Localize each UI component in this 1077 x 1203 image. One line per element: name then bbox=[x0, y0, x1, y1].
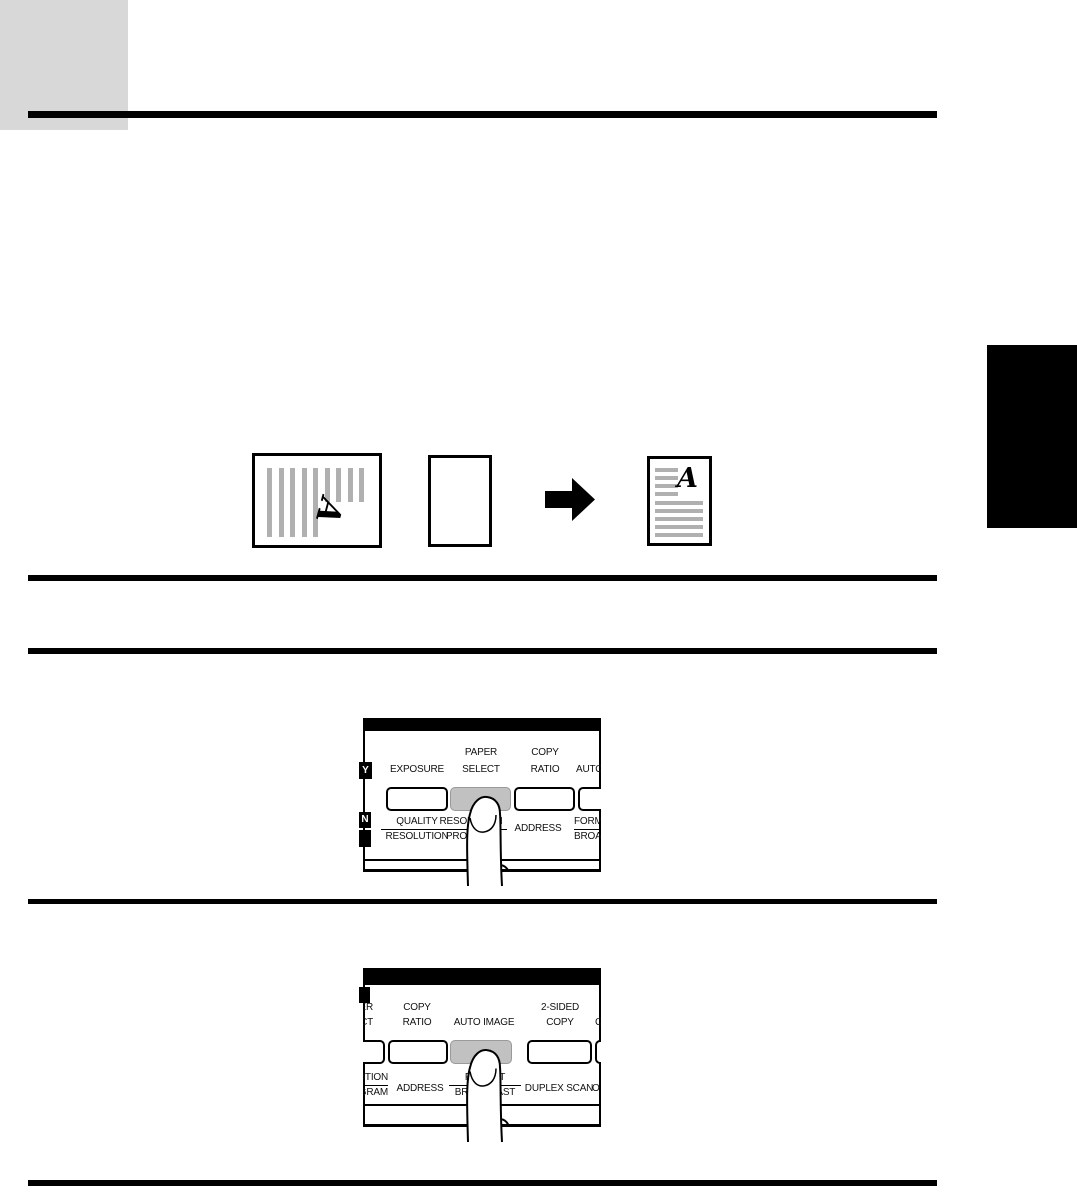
key-label-fragment-c: C bbox=[595, 1016, 601, 1029]
copy-ratio-key bbox=[514, 787, 575, 811]
manual-page: A A EXPOSURE PAPER SELECT COPY RATIO AUT… bbox=[0, 0, 1077, 1203]
text-stripe bbox=[267, 468, 272, 537]
key-label-address: ADDRESS bbox=[397, 1082, 444, 1095]
label-line2: RATIO bbox=[403, 1016, 432, 1029]
text-line bbox=[655, 484, 678, 488]
mode-tab-fragment-n: N bbox=[359, 812, 371, 828]
text-line bbox=[655, 517, 703, 521]
mode-tab-fragment-blank bbox=[359, 830, 371, 847]
text-line bbox=[655, 525, 703, 529]
section-rule-2 bbox=[28, 648, 937, 654]
text-line bbox=[655, 476, 678, 480]
bottom-rule bbox=[28, 1180, 937, 1186]
text-stripe bbox=[359, 468, 364, 502]
pointing-finger-icon bbox=[459, 1045, 505, 1142]
step-divider-rule bbox=[28, 899, 937, 904]
mode-tab-fragment-blank bbox=[359, 987, 370, 1003]
key-label-fragment-o: O bbox=[592, 1082, 600, 1095]
key-label-format-broadcast-clipped: FORMAT BROADCAST bbox=[574, 815, 601, 843]
auto-image-key-clipped bbox=[578, 787, 601, 811]
panel-top-bar bbox=[363, 718, 601, 731]
text-stripe bbox=[290, 468, 295, 537]
text-stripe bbox=[302, 468, 307, 537]
original-landscape-thumbnail: A bbox=[252, 453, 382, 548]
text-line bbox=[655, 492, 678, 496]
label-line2: COPY bbox=[546, 1016, 574, 1029]
label-line2: SELECT bbox=[462, 763, 500, 776]
text-line bbox=[655, 509, 703, 513]
text-stripe bbox=[348, 468, 353, 502]
label-line1: COPY bbox=[403, 1001, 431, 1014]
key-label-duplex-scan: DUPLEX SCAN bbox=[525, 1082, 593, 1095]
output-page-thumbnail: A bbox=[647, 456, 712, 546]
pointing-finger-icon bbox=[459, 792, 505, 886]
typeset-a-glyph: A bbox=[677, 463, 698, 494]
text-line bbox=[655, 501, 703, 505]
side-index-tab bbox=[987, 345, 1077, 528]
key-label-copy-ratio: COPY RATIO bbox=[509, 746, 581, 776]
label-top: QUALITY bbox=[396, 815, 437, 828]
key-label-paper-select: PAPER SELECT bbox=[445, 746, 517, 776]
right-arrow-icon bbox=[545, 477, 595, 522]
panel-border bbox=[363, 718, 365, 872]
text-stripe bbox=[336, 468, 341, 502]
mode-tab-fragment-y: Y bbox=[359, 762, 372, 779]
two-sided-copy-key bbox=[527, 1040, 592, 1064]
exposure-key bbox=[386, 787, 448, 811]
section-rule-1 bbox=[28, 575, 937, 581]
key-label-2-sided-copy: 2-SIDED COPY bbox=[524, 1001, 596, 1029]
text-line bbox=[655, 533, 703, 537]
blank-page-thumbnail bbox=[428, 455, 492, 547]
label-line2: RATIO bbox=[531, 763, 560, 776]
key-label-address: ADDRESS bbox=[515, 822, 562, 835]
key-label-auto-image: AUTO IMAGE bbox=[454, 1016, 515, 1029]
key-label-paper-select-clipped: PAPER SELECT bbox=[363, 1001, 373, 1029]
right-key-clipped bbox=[595, 1040, 601, 1064]
label-top: RESOLUTION bbox=[363, 1071, 388, 1084]
panel-top-bar bbox=[363, 968, 601, 985]
label-line1: COPY bbox=[531, 746, 559, 759]
label-line1: PAPER bbox=[465, 746, 497, 759]
label-line1: 2-SIDED bbox=[541, 1001, 579, 1014]
label-top: FORMAT bbox=[574, 815, 601, 828]
text-line bbox=[655, 468, 678, 472]
copy-ratio-key bbox=[388, 1040, 448, 1064]
label-bottom: PROGRAM bbox=[363, 1086, 388, 1099]
key-label-exposure: EXPOSURE bbox=[390, 763, 444, 776]
label-bottom: BROADCAST bbox=[574, 830, 601, 843]
text-stripe bbox=[279, 468, 284, 537]
key-label-copy-ratio: COPY RATIO bbox=[381, 1001, 453, 1029]
label-line2: SELECT bbox=[363, 1016, 373, 1029]
left-key-clipped bbox=[363, 1040, 385, 1064]
top-rule bbox=[28, 111, 937, 118]
key-label-resolution-program-clipped: RESOLUTION PROGRAM bbox=[363, 1071, 388, 1099]
key-label-auto-image-clipped: AUTO IMAGE bbox=[576, 763, 601, 776]
